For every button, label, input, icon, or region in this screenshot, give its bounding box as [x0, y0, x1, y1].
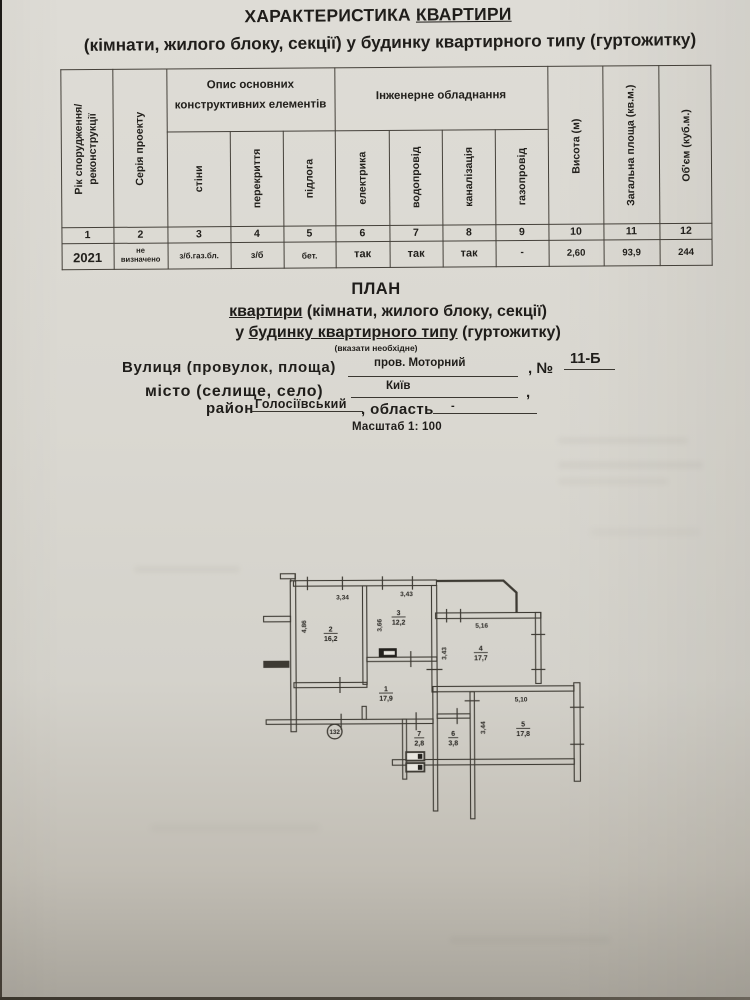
svg-text:3,44: 3,44 [480, 721, 487, 734]
svg-text:2: 2 [329, 627, 333, 634]
svg-text:4: 4 [479, 646, 483, 653]
svg-text:3,34: 3,34 [336, 594, 349, 601]
svg-text:17,8: 17,8 [516, 731, 530, 738]
svg-text:4,86: 4,86 [301, 620, 308, 633]
svg-text:3,8: 3,8 [448, 740, 458, 747]
svg-text:3: 3 [397, 610, 401, 617]
svg-text:132: 132 [330, 729, 341, 736]
svg-text:3,43: 3,43 [441, 647, 448, 660]
svg-text:3,66: 3,66 [377, 619, 384, 632]
svg-text:5: 5 [521, 722, 525, 729]
svg-text:1: 1 [384, 686, 388, 693]
svg-text:7: 7 [417, 731, 421, 738]
svg-text:6: 6 [451, 731, 455, 738]
svg-text:17,9: 17,9 [379, 696, 393, 703]
svg-text:16,2: 16,2 [324, 636, 338, 643]
svg-text:17,7: 17,7 [474, 655, 488, 662]
svg-text:3,43: 3,43 [400, 591, 413, 598]
svg-text:5,16: 5,16 [475, 623, 488, 630]
svg-text:12,2: 12,2 [392, 620, 406, 627]
svg-text:5,10: 5,10 [515, 697, 528, 704]
svg-text:2,8: 2,8 [414, 741, 424, 748]
